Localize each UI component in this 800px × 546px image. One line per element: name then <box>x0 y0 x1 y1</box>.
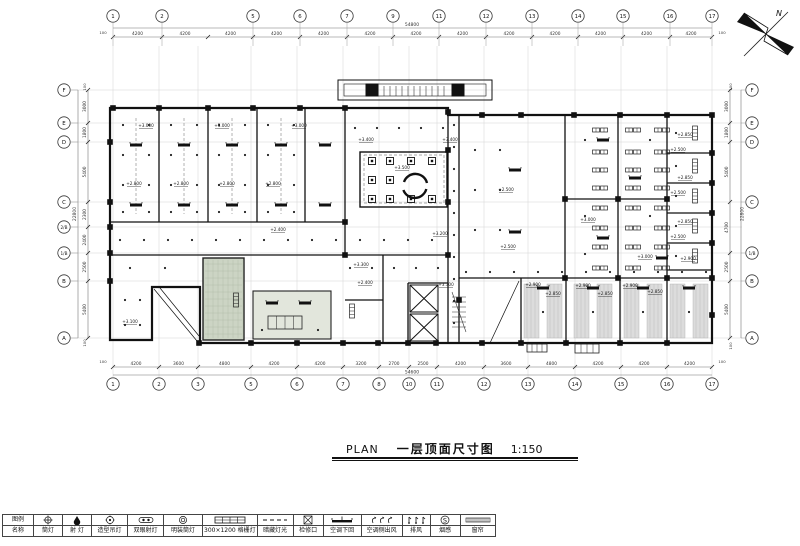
column <box>107 199 113 205</box>
cad-ceiling-plan-sheet: 4200420042004200420042004200420042004200… <box>0 0 800 546</box>
column <box>664 112 670 118</box>
dimension-text: 8 <box>377 382 381 388</box>
dimension-text: 22800 <box>72 207 78 221</box>
svg-text:S: S <box>443 516 447 524</box>
downlight <box>453 300 455 302</box>
downlight <box>453 278 455 280</box>
downlight <box>499 229 501 231</box>
downlight <box>122 154 124 156</box>
column <box>156 105 162 111</box>
title-plan-label: PLAN <box>346 443 379 456</box>
downlight <box>453 234 455 236</box>
dimension-text: 3600 <box>501 361 512 367</box>
dimension-text: +2.500 <box>670 190 686 195</box>
downlight <box>244 211 246 213</box>
dimension-text: 5400 <box>82 166 88 177</box>
cove-light-icon <box>257 515 293 526</box>
feature-pendant-core <box>389 160 391 162</box>
dimension-text: 2500 <box>418 361 429 367</box>
column <box>297 105 303 111</box>
dimension-text: 4200 <box>595 31 606 37</box>
downlight <box>542 311 544 313</box>
title-underline-thick <box>332 457 578 459</box>
downlight <box>239 239 241 241</box>
dimension-text: 1800 <box>82 127 88 138</box>
dimension-text: +3.200 <box>432 231 448 236</box>
dimension-text: F <box>62 88 65 94</box>
dimension-text: +2.900 <box>680 256 696 261</box>
exterior-wall <box>110 108 712 343</box>
dimension-text: +2.850 <box>647 289 663 294</box>
dimension-text: +2.500 <box>670 234 686 239</box>
dimension-text: 7 <box>341 382 344 388</box>
feature-pendant-icon <box>92 515 128 526</box>
dimension-text: 6 <box>298 14 302 20</box>
downlight <box>170 211 172 213</box>
dimension-text: 1 <box>111 382 114 388</box>
dimension-text: C <box>750 200 754 206</box>
dimension-text: 22800 <box>740 207 746 221</box>
dimension-text: +3.400 <box>442 137 458 142</box>
downlight <box>335 239 337 241</box>
dimension-text: 4200 <box>457 31 468 37</box>
double-spotlight-icon <box>128 515 164 526</box>
ac-side-outlet <box>683 287 695 290</box>
downlight <box>609 271 611 273</box>
legend-item-name: 空调侧出风 <box>361 526 402 537</box>
dimension-text: +2.850 <box>597 291 613 296</box>
dimension-text: 1800 <box>724 127 730 138</box>
legend-item-name: 暗藏灯光 <box>257 526 293 537</box>
downlight <box>407 239 409 241</box>
downlight <box>148 154 150 156</box>
dimension-text: 3000 <box>724 101 730 112</box>
feature-pendant-core <box>371 198 373 200</box>
downlight <box>420 127 422 129</box>
dimension-text: +2.500 <box>670 147 686 152</box>
column <box>110 105 116 111</box>
dimension-text: 2300 <box>82 209 88 220</box>
feature-pendant-core <box>431 198 433 200</box>
downlight <box>122 124 124 126</box>
dimension-text: 4200 <box>639 361 650 367</box>
dimension-text: +2.500 <box>500 244 516 249</box>
dimension-text: 4800 <box>219 361 230 367</box>
hatched-ceiling-band <box>574 284 589 338</box>
downlight <box>393 267 395 269</box>
spotlight-icon <box>63 515 92 526</box>
dimension-text: 3200 <box>356 361 367 367</box>
feature-pendant-core <box>410 160 412 162</box>
feature-pendant-core <box>410 198 412 200</box>
downlight <box>244 184 246 186</box>
column <box>107 224 113 230</box>
legend-name-row: 名称 筒灯 射 灯 造型吊灯 双眼射灯 明装筒灯 300×1200 格栅灯 暗藏… <box>3 526 496 537</box>
legend-item-name: 筒灯 <box>34 526 63 537</box>
dimension-text: +2.800 <box>173 181 189 186</box>
dimension-text: 100 <box>99 30 107 35</box>
column <box>340 340 346 346</box>
dimension-text: B <box>62 279 66 285</box>
dimension-text: 100 <box>82 83 87 91</box>
feature-pendant-core <box>431 160 433 162</box>
floor-plan-drawing: 4200420042004200420042004200420042004200… <box>0 0 800 546</box>
dimension-text: 54800 <box>405 22 419 28</box>
column <box>709 312 715 318</box>
legend-item-name: 双眼射灯 <box>128 526 164 537</box>
dimension-text: 17 <box>709 14 716 20</box>
surface-downlight-icon <box>164 515 203 526</box>
smoke-detector-icon: S <box>430 515 460 526</box>
downlight <box>267 154 269 156</box>
feature-pendant-core <box>389 198 391 200</box>
downlight <box>267 124 269 126</box>
column <box>294 340 300 346</box>
downlight <box>453 322 455 324</box>
column <box>709 180 715 186</box>
column <box>709 112 715 118</box>
dimension-text: E <box>750 121 754 127</box>
axis-grid-lines <box>58 46 742 377</box>
downlight <box>592 311 594 313</box>
hatched-ceiling-band <box>670 284 685 338</box>
dimension-text: +3.000 <box>291 123 307 128</box>
dimension-text: +3.400 <box>358 137 374 142</box>
dimension-text: +2.850 <box>677 219 693 224</box>
dimension-text: +3.000 <box>138 123 154 128</box>
downlight <box>170 124 172 126</box>
dimension-text: +2.500 <box>498 187 514 192</box>
dimension-text: 5 <box>251 14 254 20</box>
dimension-text: 4200 <box>641 31 652 37</box>
downlight <box>584 139 586 141</box>
column <box>709 240 715 246</box>
column <box>562 275 568 281</box>
dimension-text: 16 <box>667 14 674 20</box>
dimension-text: 4200 <box>593 361 604 367</box>
dimension-text: D <box>750 140 754 146</box>
downlight <box>267 211 269 213</box>
downlight <box>164 267 166 269</box>
column <box>709 150 715 156</box>
downlight <box>642 311 644 313</box>
dimension-text: 5400 <box>724 166 730 177</box>
dimension-text: +2.850 <box>545 291 561 296</box>
downlight <box>191 239 193 241</box>
ac-side-outlet <box>266 302 278 305</box>
downlight <box>317 329 319 331</box>
downlight <box>675 255 677 257</box>
column <box>571 112 577 118</box>
title-underline-thin <box>332 460 578 461</box>
dimension-text: 16 <box>664 382 671 388</box>
curtain-icon <box>460 515 495 526</box>
hatched-ceiling-band <box>524 284 539 338</box>
dimension-text: 3000 <box>82 101 88 112</box>
dimension-text: 4700 <box>724 222 730 233</box>
dimension-text: +2.400 <box>357 280 373 285</box>
dimension-text: 100 <box>728 342 733 350</box>
dimension-text: 2700 <box>389 361 400 367</box>
ac-side-outlet <box>319 144 331 147</box>
column <box>205 105 211 111</box>
downlight <box>465 271 467 273</box>
downlight <box>649 139 651 141</box>
column <box>107 250 113 256</box>
column <box>479 340 485 346</box>
dimension-text: +2.800 <box>265 181 281 186</box>
dimension-text: 3600 <box>173 361 184 367</box>
ac-side-outlet <box>178 144 190 147</box>
downlight <box>649 215 651 217</box>
dimension-text: 5400 <box>724 304 730 315</box>
dimension-text: 17 <box>709 382 716 388</box>
downlight <box>453 146 455 148</box>
column <box>709 275 715 281</box>
downlight <box>349 267 351 269</box>
column <box>433 340 439 346</box>
ac-side-outlet <box>275 204 287 207</box>
column <box>445 147 451 153</box>
column <box>615 196 621 202</box>
dimension-text: 5400 <box>82 304 88 315</box>
dimension-text: +2.850 <box>677 175 693 180</box>
legend-item-name: 明装筒灯 <box>164 526 203 537</box>
column <box>617 340 623 346</box>
downlight <box>170 154 172 156</box>
dimension-text: 4200 <box>504 31 515 37</box>
dimension-text: +2.800 <box>219 181 235 186</box>
ac-side-outlet <box>509 169 521 172</box>
dimension-text: +3.300 <box>438 282 454 287</box>
dimension-text: F <box>750 88 753 94</box>
downlight <box>293 184 295 186</box>
column <box>445 199 451 205</box>
dimension-text: +2.900 <box>525 282 541 287</box>
dimension-text: 2500 <box>724 261 730 272</box>
hatched-ceiling-band <box>624 284 639 338</box>
downlight <box>474 149 476 151</box>
ac-side-outlet <box>299 302 311 305</box>
dimension-text: 54600 <box>405 370 419 376</box>
legend-header-symbols: 图例 <box>3 515 34 526</box>
downlight <box>431 239 433 241</box>
downlight <box>584 253 586 255</box>
downlight <box>143 239 145 241</box>
dimension-text: 12 <box>481 382 488 388</box>
downlight <box>196 211 198 213</box>
downlight <box>675 225 677 227</box>
downlight <box>244 124 246 126</box>
column <box>479 112 485 118</box>
dimension-text: 1/B <box>749 251 756 256</box>
ac-side-outlet <box>509 231 521 234</box>
dimension-text: 2500 <box>82 261 88 272</box>
dimension-text: 7 <box>345 14 348 20</box>
downlight <box>148 184 150 186</box>
dimension-text: D <box>62 140 66 146</box>
dimension-text: 4200 <box>271 31 282 37</box>
downlight <box>633 271 635 273</box>
dimension-text: 14 <box>575 14 582 20</box>
ac-side-outlet <box>597 139 609 142</box>
downlight <box>196 154 198 156</box>
downlight <box>359 239 361 241</box>
downlight <box>167 239 169 241</box>
downlight <box>196 184 198 186</box>
north-arrow-icon: N <box>737 9 794 56</box>
downlight <box>311 239 313 241</box>
downlight <box>215 239 217 241</box>
dimension-text: C <box>62 200 66 206</box>
dimension-text: +3.000 <box>580 217 596 222</box>
dimension-text: 1/B <box>61 251 68 256</box>
feature-pendant-core <box>371 160 373 162</box>
downlight <box>398 127 400 129</box>
ac-side-outlet <box>130 144 142 147</box>
ac-side-outlet <box>629 177 641 180</box>
downlight <box>442 127 444 129</box>
dimension-text: 14 <box>572 382 579 388</box>
column <box>107 278 113 284</box>
dimension-text: +3.000 <box>637 254 653 259</box>
dimension-text: 10 <box>406 382 413 388</box>
downlight <box>371 267 373 269</box>
dimension-text: 15 <box>618 382 625 388</box>
downlight <box>218 211 220 213</box>
legend-item-name: 空调下回 <box>323 526 361 537</box>
downlight <box>513 271 515 273</box>
dimension-text: +2.900 <box>575 283 591 288</box>
downlight <box>681 271 683 273</box>
elevator-shaft <box>410 285 438 341</box>
dimension-text: 4200 <box>411 31 422 37</box>
column <box>664 275 670 281</box>
dimension-text: 2 <box>160 14 163 20</box>
column <box>709 210 715 216</box>
downlight <box>139 324 141 326</box>
downlight <box>293 154 295 156</box>
downlight <box>453 212 455 214</box>
dimension-text: 100 <box>718 30 726 35</box>
dimension-text: 4200 <box>225 31 236 37</box>
dimension-text: +2.400 <box>270 227 286 232</box>
downlight <box>148 211 150 213</box>
downlight <box>139 299 141 301</box>
dimension-text: 4200 <box>131 361 142 367</box>
legend-item-name: 射 灯 <box>63 526 92 537</box>
dimension-text: +2.900 <box>622 283 638 288</box>
dimension-text: 15 <box>620 14 627 20</box>
legend-item-name: 窗帘 <box>460 526 495 537</box>
dimension-text: A <box>62 336 66 342</box>
ac-side-outlet <box>226 204 238 207</box>
legend-header-names: 名称 <box>3 526 34 537</box>
downlight <box>244 154 246 156</box>
legend-symbol-row: 图例 S <box>3 515 496 526</box>
dimension-text: 13 <box>529 14 536 20</box>
column <box>518 340 524 346</box>
dimension-text: +3.500 <box>394 165 410 170</box>
column <box>250 105 256 111</box>
downlight <box>287 239 289 241</box>
downlight <box>453 168 455 170</box>
dimension-text: 4200 <box>686 31 697 37</box>
downlight <box>354 127 356 129</box>
dimension-text: 9 <box>391 14 395 20</box>
dimension-text: 13 <box>525 382 532 388</box>
dimension-text: 11 <box>434 382 441 388</box>
dimension-text: 2400 <box>82 234 88 245</box>
ac-side-outlet <box>597 237 609 240</box>
downlight <box>122 184 124 186</box>
dimension-text: 2/B <box>61 225 68 230</box>
downlight <box>537 271 539 273</box>
downlight <box>415 267 417 269</box>
downlight <box>453 256 455 258</box>
hatched-ceiling-band <box>693 284 708 338</box>
column <box>456 297 462 303</box>
grille-light-icon <box>203 515 258 526</box>
downlight <box>453 190 455 192</box>
column <box>342 105 348 111</box>
downlight <box>119 239 121 241</box>
downlight <box>474 229 476 231</box>
downlight <box>261 329 263 331</box>
column <box>248 340 254 346</box>
dimension-text: +3.100 <box>122 319 138 324</box>
column <box>445 109 451 115</box>
downlight <box>585 271 587 273</box>
downlight <box>561 271 563 273</box>
dimension-text: +3.000 <box>214 123 230 128</box>
downlight <box>170 184 172 186</box>
column <box>615 275 621 281</box>
legend-item-name: 检修口 <box>293 526 323 537</box>
column <box>664 196 670 202</box>
ac-side-outlet <box>130 204 142 207</box>
legend-item-name: 300×1200 格栅灯 <box>203 526 258 537</box>
legend-item-name: 造型吊灯 <box>92 526 128 537</box>
dimension-text: 4200 <box>180 31 191 37</box>
legend-table: 图例 S 名称 筒灯 射 灯 造型吊灯 <box>2 514 496 537</box>
dimension-text: +3.300 <box>353 262 369 267</box>
ac-side-outlet-icon <box>361 515 402 526</box>
dimension-text: B <box>750 279 754 285</box>
drawing-title-block: PLAN 一层顶面尺寸图 1:150 <box>332 440 578 457</box>
dimension-text: 4200 <box>315 361 326 367</box>
downlight <box>263 239 265 241</box>
dimension-text: 5 <box>249 382 252 388</box>
feature-pendant-core <box>389 179 391 181</box>
downlight <box>437 267 439 269</box>
dimension-text: 1 <box>111 14 114 20</box>
dimension-text: 2 <box>157 382 160 388</box>
downlight <box>383 239 385 241</box>
dimension-text: 4200 <box>269 361 280 367</box>
column <box>405 340 411 346</box>
downlight <box>453 124 455 126</box>
dimension-text: E <box>62 121 66 127</box>
downlight <box>499 149 501 151</box>
column <box>342 252 348 258</box>
downlight <box>129 267 131 269</box>
dimension-text: 4200 <box>365 31 376 37</box>
legend-item-name: 排风 <box>402 526 430 537</box>
downlight <box>218 154 220 156</box>
dimension-text: 100 <box>718 359 726 364</box>
dimension-text: +2.850 <box>677 132 693 137</box>
